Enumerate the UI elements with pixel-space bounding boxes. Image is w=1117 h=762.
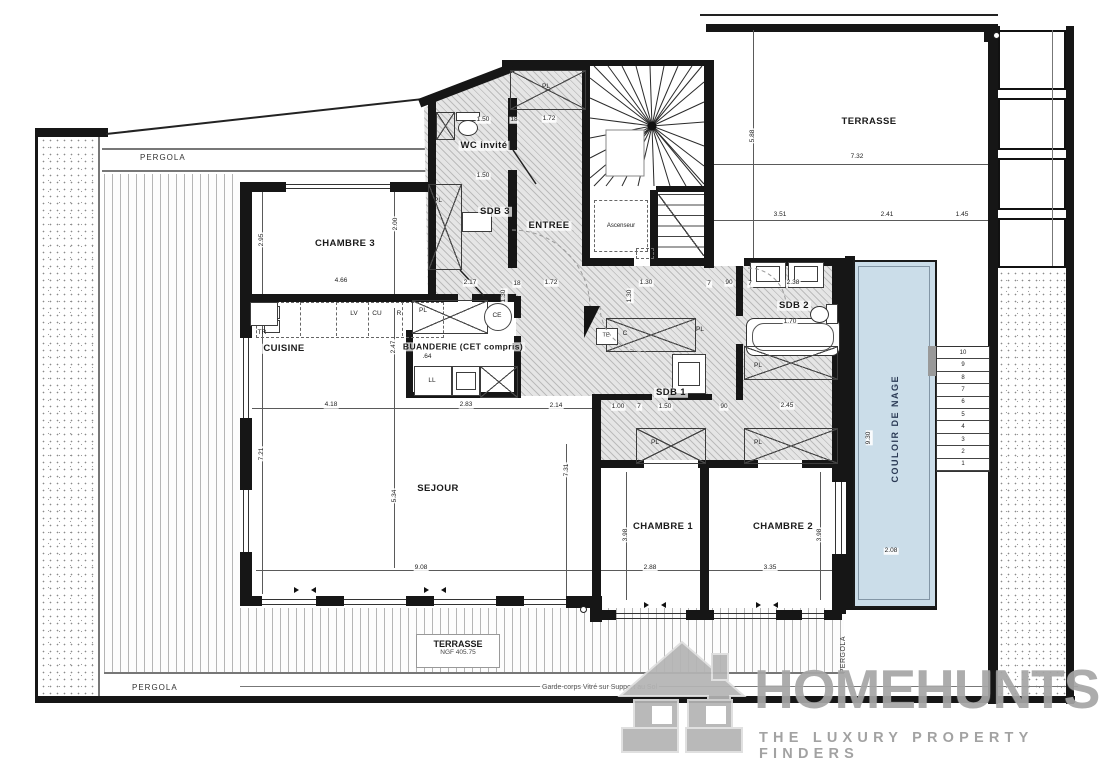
room-label-sdb1: SDB 1	[654, 388, 688, 398]
room-label-sdb3: SDB 3	[478, 207, 512, 217]
west-window-2-glass	[248, 490, 249, 552]
brand-tagline: THE LUXURY PROPERTY FINDERS	[759, 730, 1117, 762]
closet-label: PL	[754, 363, 762, 370]
pergola-label-top: PERGOLA	[140, 153, 186, 162]
slider-arrow	[644, 602, 649, 608]
room-label-wc: WC invité	[459, 141, 510, 151]
dim-label: 9.30	[866, 431, 873, 446]
slider-arrow	[424, 587, 429, 593]
slider-arrow	[441, 587, 446, 593]
west-window-2-glass	[243, 490, 244, 552]
slider-arrow	[294, 587, 299, 593]
room-label-chambre3: CHAMBRE 3	[313, 239, 377, 249]
terrasse-ne-label: TERRASSE	[840, 117, 899, 127]
south-pier	[406, 596, 434, 606]
door-pivot	[580, 606, 587, 613]
room-label-entree: ENTREE	[527, 221, 572, 231]
south-pier	[316, 596, 344, 606]
dim-label: 1.45	[955, 212, 970, 219]
slider-arrow	[311, 587, 316, 593]
dim-label: 2.47	[391, 340, 398, 355]
dim-label: 2.45	[780, 403, 795, 410]
pergola-label-bottom: PERGOLA	[132, 683, 178, 692]
dim-label: 1.50	[476, 173, 491, 180]
closet-label: PL	[651, 440, 659, 447]
dim-label: 1.30	[627, 289, 634, 304]
terrasse-s-ngf: NGF 405.75	[417, 649, 499, 656]
dim-label: .64	[421, 354, 432, 361]
closet-label: C	[623, 331, 628, 338]
dim-label: 2.83	[459, 402, 474, 409]
dim-label: 2.38	[786, 280, 801, 287]
dim-label: 1.30	[639, 280, 654, 287]
dim-label: 1.30	[501, 289, 508, 304]
south-pier	[496, 596, 524, 606]
terrasse-s-box: TERRASSE NGF 405.75	[416, 634, 500, 668]
brand-wordmark: HOMEHUNTS	[754, 662, 1099, 717]
room-label-chambre1: CHAMBRE 1	[631, 522, 695, 532]
slider-arrow	[756, 602, 761, 608]
dim-label: 1.72	[542, 116, 557, 123]
dim-label: 1.50	[658, 404, 673, 411]
dim-label: 18	[509, 117, 518, 124]
dim-label: 2.17	[463, 280, 478, 287]
west-window-1-glass	[243, 338, 244, 418]
east-window-glass	[841, 482, 842, 554]
dim-label: 7	[706, 281, 712, 288]
dim-label: 1.00	[611, 404, 626, 411]
closet-label: PL	[542, 84, 550, 91]
appliance-label: R	[397, 311, 402, 318]
appliance-label: CE	[492, 313, 501, 320]
floor-plan: COULOIR DE NAGE 10 9 8 7 6 5 4 3 2 1	[0, 0, 1117, 762]
west-window-1-glass	[248, 338, 249, 418]
room-label-sdb2: SDB 2	[777, 301, 811, 311]
dim-label: 5.34	[392, 489, 399, 504]
dim-label: 7.32	[850, 154, 865, 161]
appliance-label: TE	[602, 333, 609, 339]
dim-label: 2.41	[880, 212, 895, 219]
dim-label: 7.31	[564, 463, 571, 478]
closet-label: PL	[419, 308, 427, 315]
closet-label: PL	[754, 440, 762, 447]
north-window-glass	[286, 188, 390, 189]
closet-label: PL	[696, 327, 704, 334]
room-label-cuisine: CUISINE	[261, 344, 306, 354]
dim-label: 9.08	[414, 565, 429, 572]
gate-pivot	[993, 32, 1000, 39]
dim-label: 18	[512, 281, 521, 288]
dim-label: 90	[724, 280, 733, 287]
room-label-buanderie: BUANDERIE (CET compris)	[401, 342, 525, 351]
homehunts-logo: HOMEHUNTS THE LUXURY PROPERTY FINDERS	[612, 640, 1117, 762]
dim-label: 3.35	[763, 565, 778, 572]
slider-arrow	[773, 602, 778, 608]
dim-label: 2.00	[393, 217, 400, 232]
dim-label: 2.95	[259, 233, 266, 248]
south-glass-ch	[600, 613, 840, 614]
south-pier	[776, 610, 802, 620]
closet-label: PL	[434, 198, 442, 205]
appliance-label: CU	[372, 311, 381, 318]
south-pier	[824, 610, 842, 620]
dim-label: 5.88	[750, 129, 757, 144]
north-window-glass	[286, 184, 390, 185]
south-pier	[686, 610, 714, 620]
dim-label: 3.98	[817, 528, 824, 543]
south-glass-ch	[600, 618, 840, 619]
south-pier	[600, 610, 616, 620]
dim-label: 4.66	[334, 278, 349, 285]
dim-label: 7	[747, 281, 753, 288]
terrasse-s-label: TERRASSE	[417, 639, 499, 649]
appliance-label: LL	[428, 378, 435, 385]
dim-label: 2.08	[884, 548, 899, 555]
east-window-glass	[835, 482, 836, 554]
house-icon	[612, 640, 752, 760]
dim-label: 3.51	[773, 212, 788, 219]
dim-label: 3.98	[623, 528, 630, 543]
dim-label: 7.21	[259, 447, 266, 462]
dim-label: 7	[636, 404, 642, 411]
appliance-label: TR	[258, 330, 267, 337]
dim-label: 4.18	[324, 402, 339, 409]
dim-label: 1.50	[476, 117, 491, 124]
dim-label: 1.72	[544, 280, 559, 287]
slider-arrow	[661, 602, 666, 608]
south-pier	[240, 596, 262, 606]
room-label-chambre2: CHAMBRE 2	[751, 522, 815, 532]
dim-label: 2.14	[549, 403, 564, 410]
dim-label: 90	[719, 404, 728, 411]
room-label-sejour: SEJOUR	[415, 484, 460, 494]
appliance-label: LV	[350, 311, 357, 318]
dim-label: 1.70	[783, 319, 798, 326]
dim-label: 2.88	[643, 565, 658, 572]
